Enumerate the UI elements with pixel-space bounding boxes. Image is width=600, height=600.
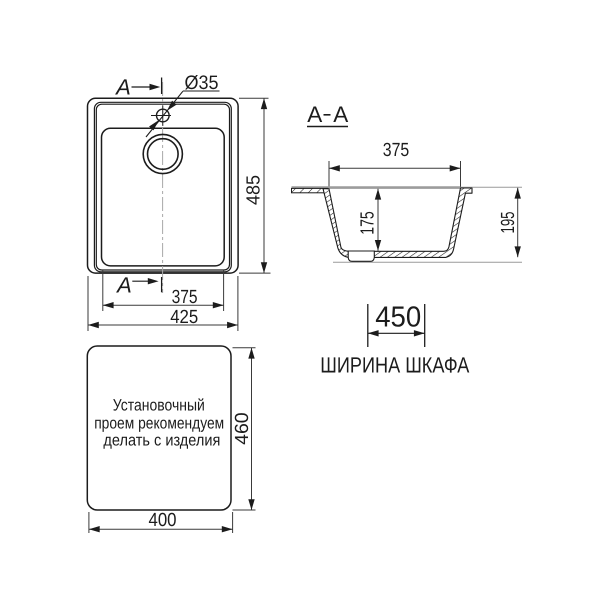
svg-text:ШИРИНА ШКАФА: ШИРИНА ШКАФА xyxy=(320,353,469,378)
svg-text:400: 400 xyxy=(149,510,177,531)
svg-text:375: 375 xyxy=(383,140,410,161)
svg-text:делать с изделия: делать с изделия xyxy=(103,432,220,450)
svg-text:A: A xyxy=(333,102,348,127)
svg-text:A: A xyxy=(115,273,132,298)
svg-text:425: 425 xyxy=(170,307,198,328)
svg-text:Установочный: Установочный xyxy=(113,397,205,415)
svg-text:175: 175 xyxy=(357,211,378,235)
svg-text:A: A xyxy=(114,75,131,100)
svg-text:проем рекомендуем: проем рекомендуем xyxy=(94,415,224,433)
svg-text:A: A xyxy=(307,102,322,127)
svg-text:485: 485 xyxy=(244,175,265,205)
svg-text:375: 375 xyxy=(172,287,198,308)
svg-text:450: 450 xyxy=(375,302,421,334)
svg-text:195: 195 xyxy=(498,212,519,234)
svg-text:460: 460 xyxy=(232,412,253,445)
